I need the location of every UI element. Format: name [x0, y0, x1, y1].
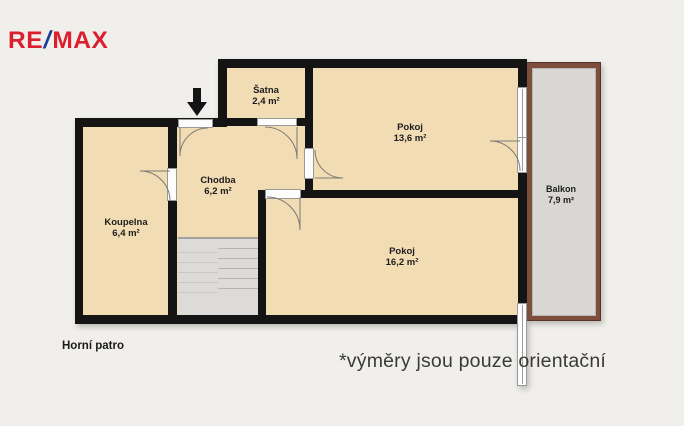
- room-name: Pokoj: [360, 122, 460, 133]
- room-label-pokoj-dolni: Pokoj 16,2 m²: [352, 246, 452, 268]
- room-name: Chodba: [178, 175, 258, 186]
- room-label-chodba: Chodba 6,2 m²: [178, 175, 258, 197]
- disclaimer-text: *výměry jsou pouze orientační: [339, 350, 606, 373]
- satna-door-opening: [257, 118, 297, 126]
- room-name: Balkon: [531, 184, 591, 195]
- room-name: Koupelna: [86, 217, 166, 228]
- staircase: [178, 237, 258, 317]
- room-label-balkon: Balkon 7,9 m²: [531, 184, 591, 206]
- room-label-pokoj-horni: Pokoj 13,6 m²: [360, 122, 460, 144]
- room-area: 6,2 m²: [178, 186, 258, 197]
- balcony-door-window: [517, 87, 527, 173]
- room-area: 13,6 m²: [360, 133, 460, 144]
- room-label-satna: Šatna 2,4 m²: [226, 85, 306, 107]
- pokoj-dolni-door-opening: [265, 189, 301, 199]
- room-area: 7,9 m²: [531, 195, 591, 206]
- balcony-door-divider: [517, 137, 527, 138]
- pokoj-horni-door-opening: [304, 148, 314, 179]
- koupelna-door-opening: [167, 168, 177, 201]
- wall-koupelna-right: [168, 127, 177, 315]
- staircase-steps-left: [178, 243, 218, 295]
- room-name: Šatna: [226, 85, 306, 96]
- room-area: 2,4 m²: [226, 96, 306, 107]
- wall-top: [218, 59, 527, 68]
- room-name: Pokoj: [352, 246, 452, 257]
- room-area: 16,2 m²: [352, 257, 452, 268]
- wall-left: [75, 118, 83, 324]
- floor-label: Horní patro: [62, 340, 124, 352]
- wall-bottom: [75, 315, 527, 324]
- pokoj-dolni-window: [517, 303, 527, 386]
- wall-stairs-right: [258, 198, 266, 315]
- room-label-koupelna: Koupelna 6,4 m²: [86, 217, 166, 239]
- staircase-steps-right: [218, 239, 258, 291]
- entrance-door-opening: [178, 119, 213, 128]
- room-area: 6,4 m²: [86, 228, 166, 239]
